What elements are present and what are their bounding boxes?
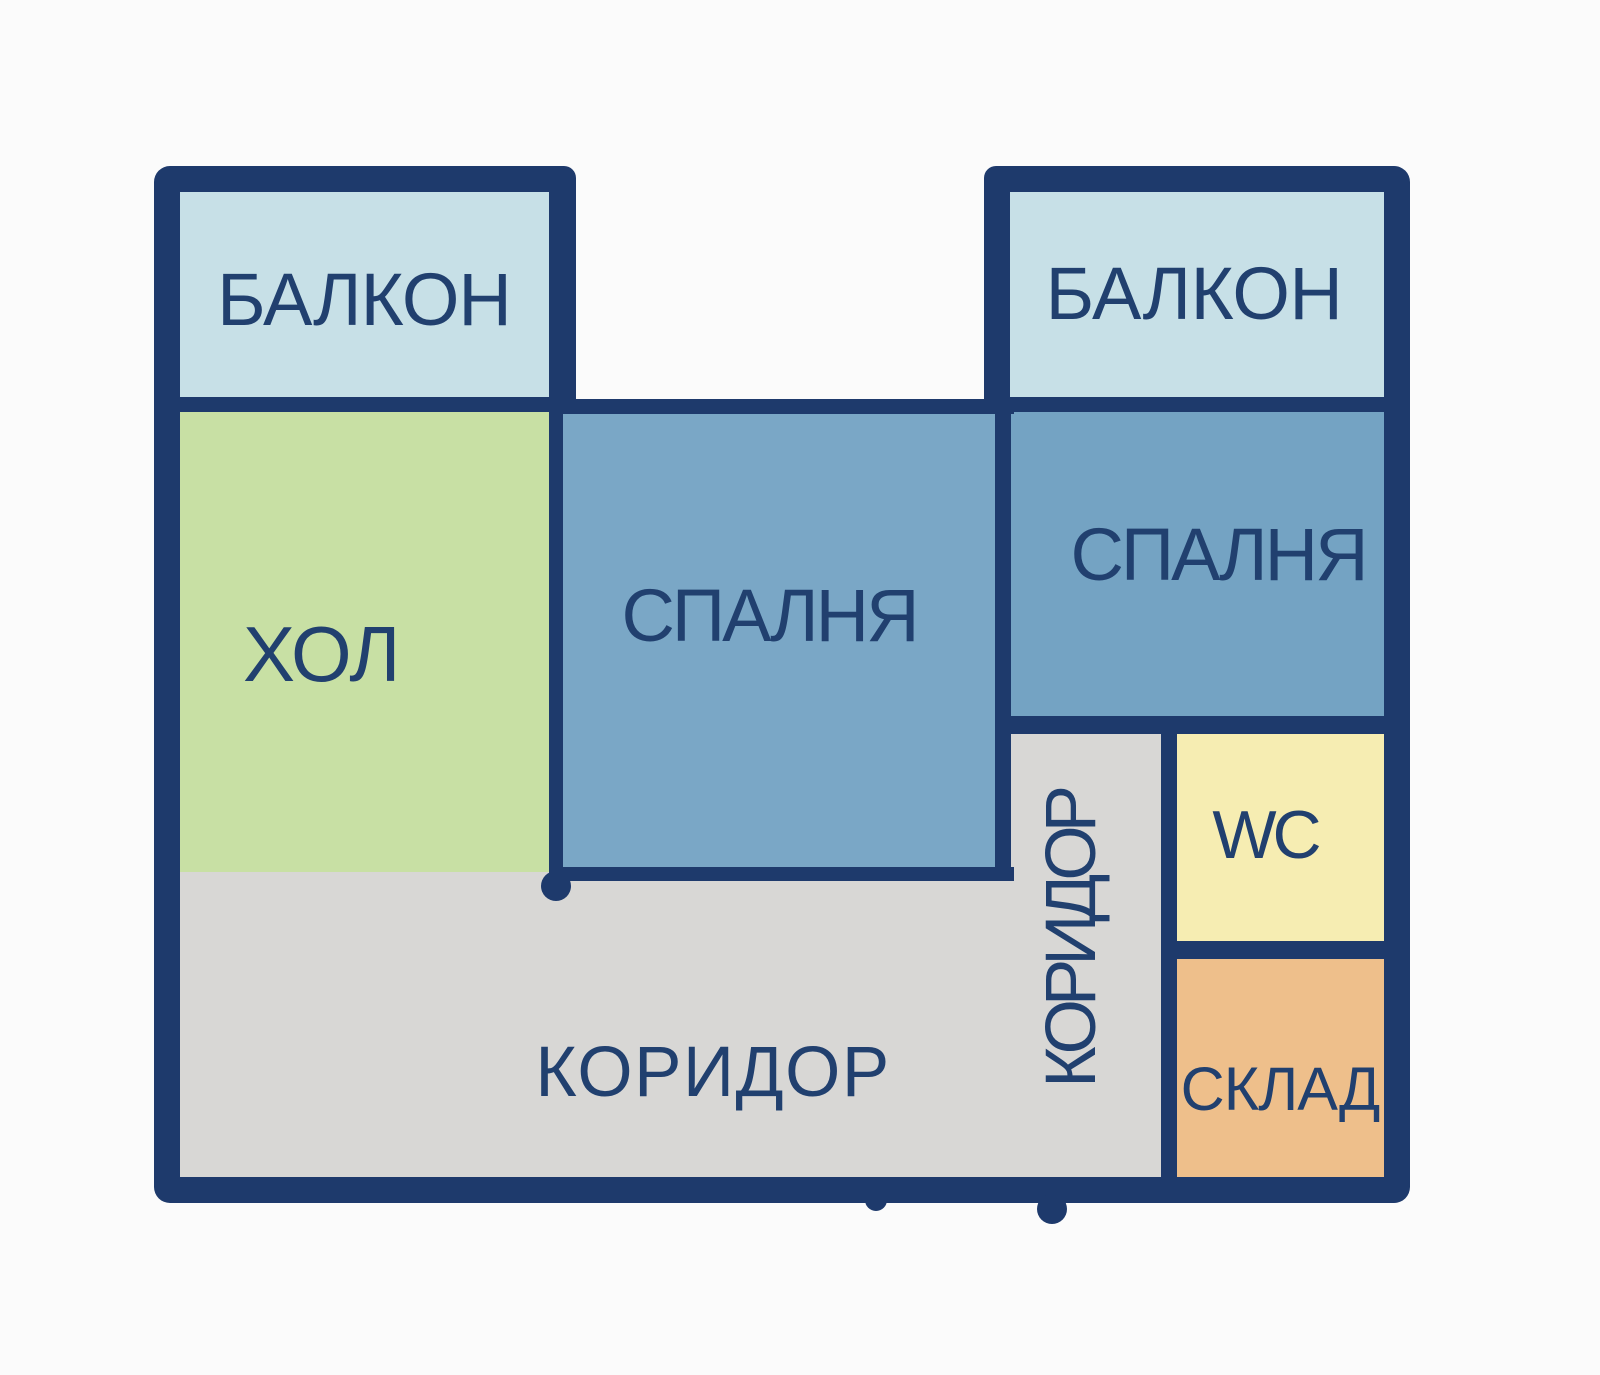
svg-text:БАЛКОН: БАЛКОН [1046, 252, 1343, 335]
svg-text:КОРИДОР: КОРИДОР [1032, 788, 1111, 1087]
svg-text:ХОЛ: ХОЛ [243, 610, 399, 698]
svg-text:КОРИДОР: КОРИДОР [535, 1033, 890, 1112]
svg-text:WC: WC [1212, 797, 1319, 873]
svg-text:СКЛАД: СКЛАД [1181, 1055, 1380, 1123]
svg-text:СПАЛНЯ: СПАЛНЯ [1070, 513, 1365, 596]
svg-text:СПАЛНЯ: СПАЛНЯ [621, 574, 916, 657]
svg-text:БАЛКОН: БАЛКОН [217, 258, 511, 341]
